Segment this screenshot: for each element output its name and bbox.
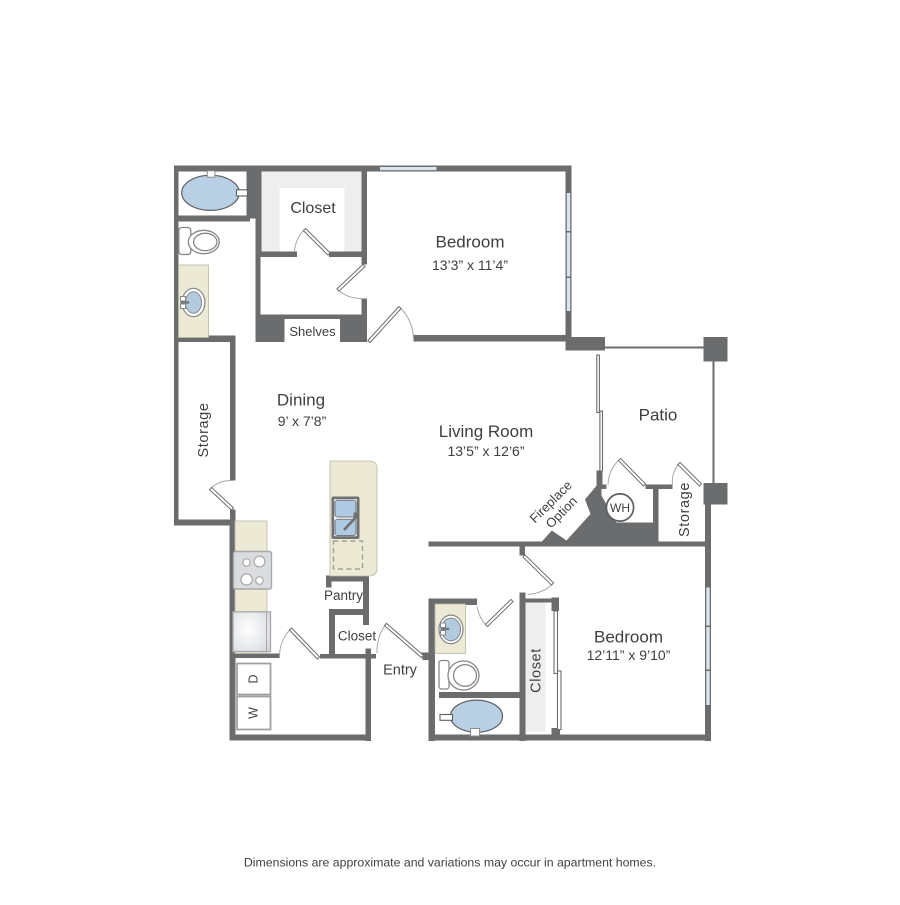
svg-text:Storage: Storage [196, 403, 212, 458]
svg-text:13’5” x 12’6”: 13’5” x 12’6” [447, 443, 524, 459]
svg-text:13’3” x 11’4”: 13’3” x 11’4” [432, 257, 508, 273]
svg-text:Closet: Closet [529, 648, 545, 693]
svg-text:D: D [247, 674, 261, 683]
svg-text:Pantry: Pantry [324, 588, 363, 603]
svg-text:9’ x 7’8”: 9’ x 7’8” [278, 413, 327, 429]
svg-text:Dimensions are approximate and: Dimensions are approximate and variation… [244, 856, 656, 870]
svg-text:Entry: Entry [383, 663, 418, 679]
svg-text:Closet: Closet [338, 629, 377, 644]
svg-text:12’11” x 9’10”: 12’11” x 9’10” [587, 647, 671, 663]
svg-text:Living Room: Living Room [439, 422, 534, 441]
svg-text:W: W [247, 707, 261, 719]
svg-text:Patio: Patio [639, 406, 678, 425]
svg-text:Bedroom: Bedroom [436, 233, 505, 252]
svg-text:WH: WH [610, 501, 630, 515]
svg-text:Dining: Dining [277, 391, 325, 410]
svg-text:Bedroom: Bedroom [594, 628, 663, 647]
svg-text:Shelves: Shelves [289, 324, 336, 339]
svg-text:Storage: Storage [677, 482, 693, 537]
svg-text:Closet: Closet [290, 200, 336, 217]
